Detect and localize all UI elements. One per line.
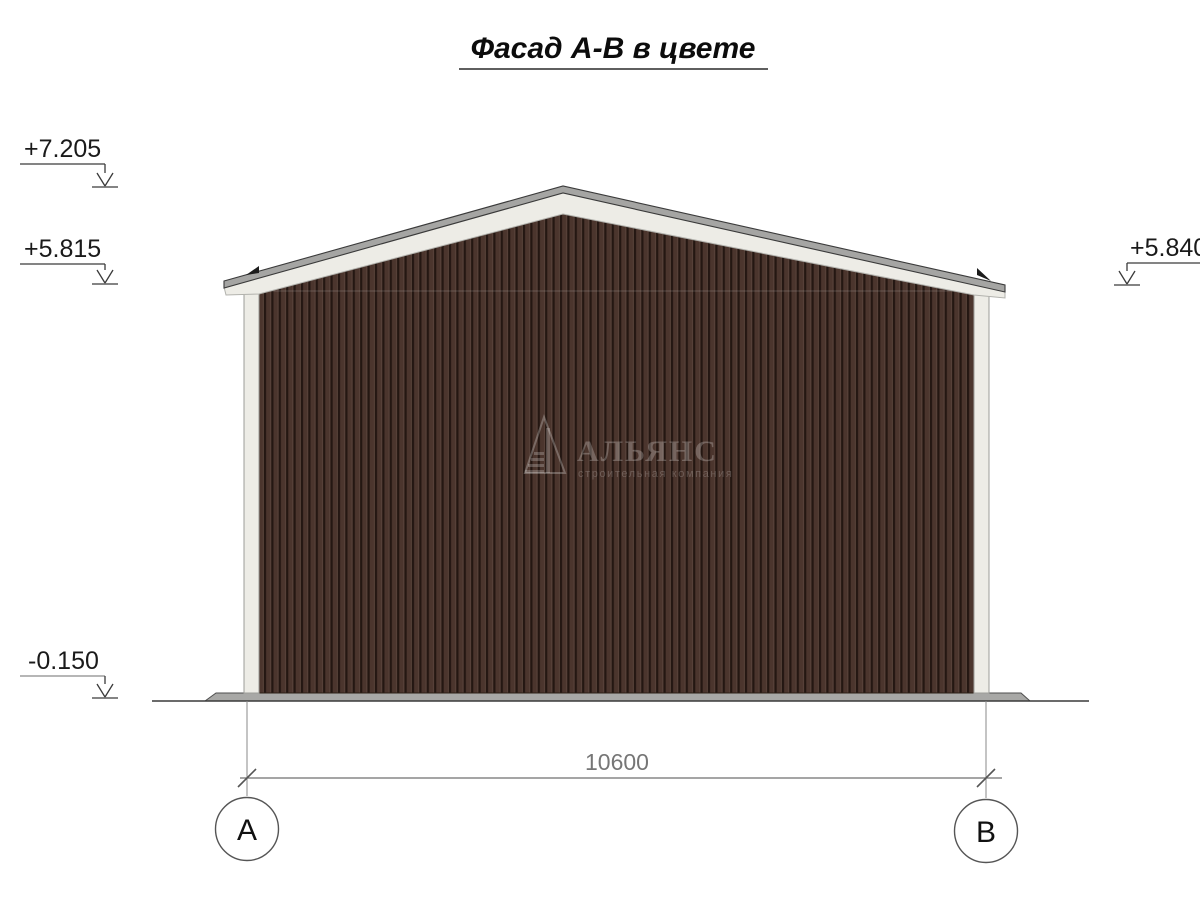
facade-drawing: Фасад А-В в цвете АЛЬЯНС строительная ко… [0,0,1200,900]
plinth-strip [205,693,1030,701]
elevation-label-ground: -0.150 [28,647,99,675]
level-arrow-icon [97,173,105,186]
level-arrow-icon [97,684,105,697]
drawing-header: Фасад А-В в цвете [459,32,768,69]
watermark-step-bar [528,464,544,467]
axis-label-a: А [237,814,257,847]
elevation-marker-ridge: +7.205 [20,135,118,187]
level-arrow-icon [1127,271,1135,284]
corner-column-left [244,289,259,693]
watermark-step-bar [531,458,544,461]
watermark-triangle-stripe [546,428,550,473]
axis-label-b: В [976,816,996,849]
watermark-step-bar [525,470,544,473]
building-facade: АЛЬЯНС строительная компания [152,186,1089,701]
elevation-marker-eave-right: +5.840 [1114,234,1200,285]
facade-drawing-sheet: Фасад А-В в цвете АЛЬЯНС строительная ко… [0,0,1200,900]
elevation-label-eave-right: +5.840 [1130,234,1200,262]
watermark-step-bar [534,452,544,455]
watermark-company-name: АЛЬЯНС [577,435,718,468]
elevation-label-ridge: +7.205 [24,135,101,163]
dimension-group: 10600 А В [216,701,1018,863]
level-arrow-icon [105,173,113,186]
elevation-marker-ground: -0.150 [20,647,118,698]
level-arrow-icon [97,270,105,283]
corner-column-right [974,291,989,693]
elevation-marker-eave-left: +5.815 [20,235,118,284]
level-arrow-icon [1119,271,1127,284]
page-title: Фасад А-В в цвете [471,32,756,65]
dimension-label: 10600 [585,749,649,775]
level-arrow-icon [105,270,113,283]
watermark-tagline: строительная компания [578,468,733,480]
elevation-label-eave-left: +5.815 [24,235,101,263]
level-arrow-icon [105,684,113,697]
